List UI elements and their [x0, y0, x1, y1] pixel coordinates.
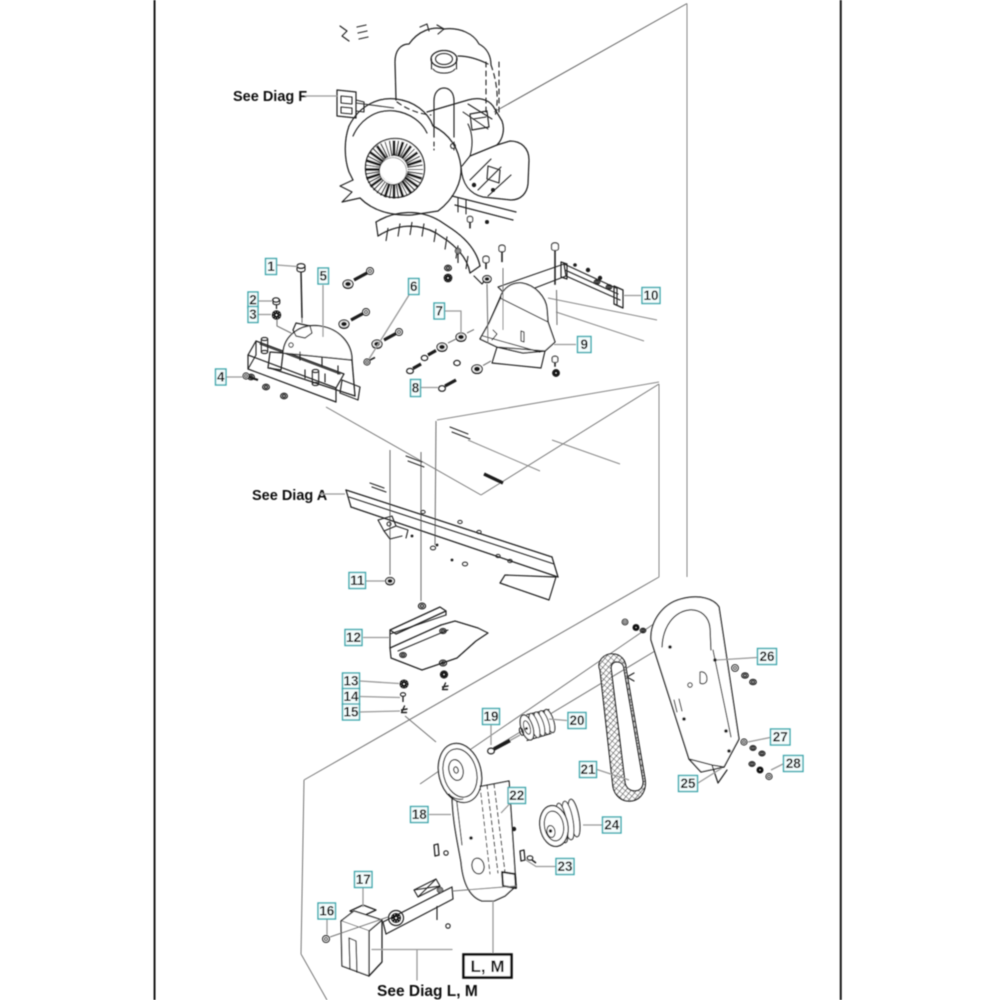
- svg-text:27: 27: [773, 729, 788, 744]
- svg-text:14: 14: [343, 689, 359, 704]
- svg-text:11: 11: [350, 573, 365, 588]
- svg-text:10: 10: [643, 288, 658, 303]
- svg-text:22: 22: [509, 788, 524, 803]
- svg-text:5: 5: [319, 268, 327, 283]
- svg-text:6: 6: [410, 279, 418, 294]
- svg-text:1: 1: [267, 259, 275, 274]
- svg-text:12: 12: [346, 630, 361, 645]
- svg-text:15: 15: [343, 704, 359, 719]
- svg-text:See Diag L, M: See Diag L, M: [377, 983, 478, 1000]
- svg-text:28: 28: [786, 756, 802, 771]
- svg-text:26: 26: [759, 649, 775, 664]
- svg-text:7: 7: [435, 303, 443, 318]
- svg-text:See Diag A: See Diag A: [252, 488, 328, 504]
- svg-text:9: 9: [580, 337, 588, 352]
- svg-text:2: 2: [249, 292, 257, 307]
- svg-text:13: 13: [343, 673, 359, 688]
- svg-text:8: 8: [412, 380, 420, 395]
- svg-text:3: 3: [249, 307, 257, 322]
- svg-text:20: 20: [569, 713, 584, 728]
- svg-text:23: 23: [557, 859, 573, 874]
- svg-text:17: 17: [356, 872, 371, 887]
- svg-text:L, M: L, M: [471, 957, 505, 976]
- svg-text:See Diag F: See Diag F: [233, 89, 307, 105]
- svg-text:21: 21: [580, 762, 596, 777]
- svg-text:4: 4: [217, 369, 225, 384]
- svg-text:25: 25: [680, 776, 696, 791]
- svg-text:16: 16: [319, 903, 335, 918]
- svg-text:19: 19: [483, 709, 498, 724]
- svg-text:18: 18: [412, 807, 428, 822]
- svg-text:24: 24: [604, 817, 620, 832]
